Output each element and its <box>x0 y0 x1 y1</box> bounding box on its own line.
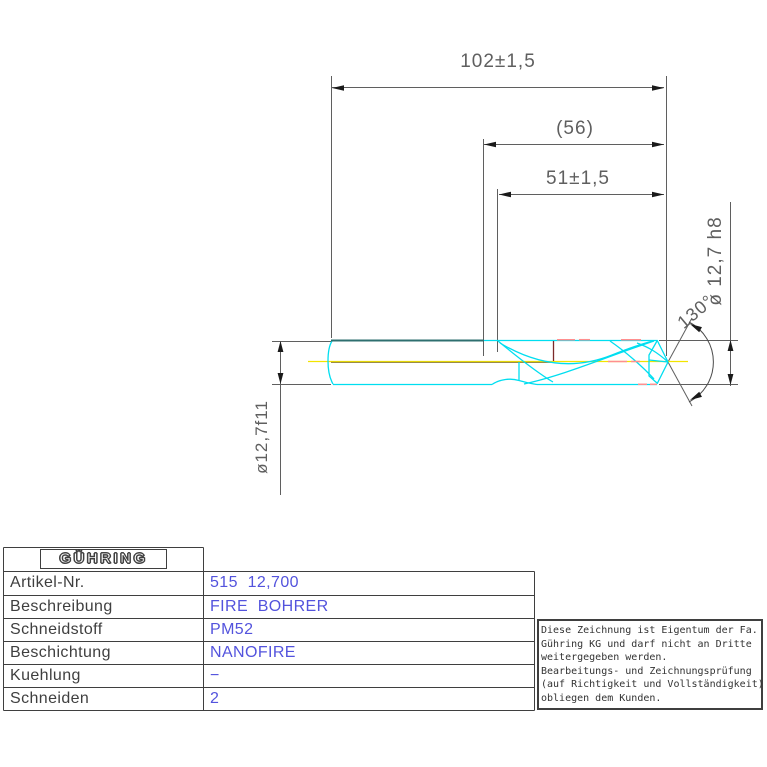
ownership-notes: Diese Zeichnung ist Eigentum der Fa. Güh… <box>541 624 765 705</box>
row-value-beschichtung: NANOFIRE <box>210 644 296 662</box>
extension-lines <box>272 76 738 385</box>
row-value-kuehlung: − <box>210 667 220 685</box>
notes-line: obliegen dem Kunden. <box>541 692 765 706</box>
row-label-schneiden: Schneiden <box>10 690 89 708</box>
dim-cut-diameter: ø 12,7 h8 <box>705 216 727 305</box>
dim-ref-length: (56) <box>556 118 594 140</box>
logo-guehring: GÜHRING <box>40 548 167 568</box>
row-label-kuehlung: Kuehlung <box>10 667 81 685</box>
row-label-beschreibung: Beschreibung <box>10 598 113 616</box>
row-label-schneidstoff: Schneidstoff <box>10 621 103 639</box>
technical-drawing-sheet: 102±1,5 (56) 51±1,5 ø 12,7 h8 ø12,7f11 1… <box>0 0 767 767</box>
dim-shank-diameter: ø12,7f11 <box>252 400 272 474</box>
dim-flute-length: 51±1,5 <box>546 168 610 190</box>
row-value-schneiden: 2 <box>210 690 219 708</box>
dimension-lines <box>281 88 731 496</box>
row-value-beschreibung: FIRE BOHRER <box>210 598 329 616</box>
notes-line: Gühring KG und darf nicht an Dritte <box>541 638 765 652</box>
dim-overall-length: 102±1,5 <box>460 51 536 73</box>
row-label-beschichtung: Beschichtung <box>10 644 111 662</box>
row-value-schneidstoff: PM52 <box>210 621 253 639</box>
notes-line: weitergegeben werden. <box>541 651 765 665</box>
row-value-artikel-nr: 515 12,700 <box>210 574 299 592</box>
notes-line: (auf Richtigkeit und Vollständigkeit) <box>541 678 765 692</box>
notes-line: Bearbeitungs- und Zeichnungsprüfung <box>541 665 765 679</box>
notes-line: Diese Zeichnung ist Eigentum der Fa. <box>541 624 765 638</box>
row-label-artikel-nr: Artikel-Nr. <box>10 574 85 592</box>
